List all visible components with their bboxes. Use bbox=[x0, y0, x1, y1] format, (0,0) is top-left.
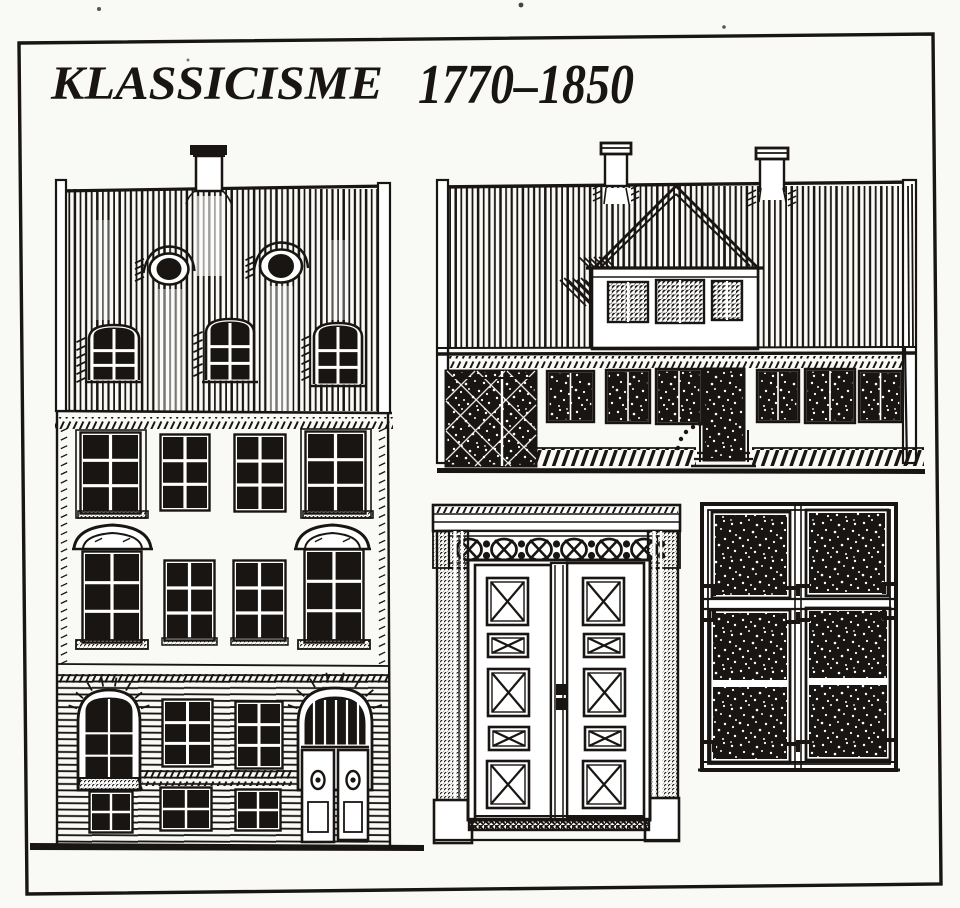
svg-text:1770–1850: 1770–1850 bbox=[418, 54, 634, 116]
svg-text:KLASSICISME: KLASSICISME bbox=[50, 57, 383, 110]
